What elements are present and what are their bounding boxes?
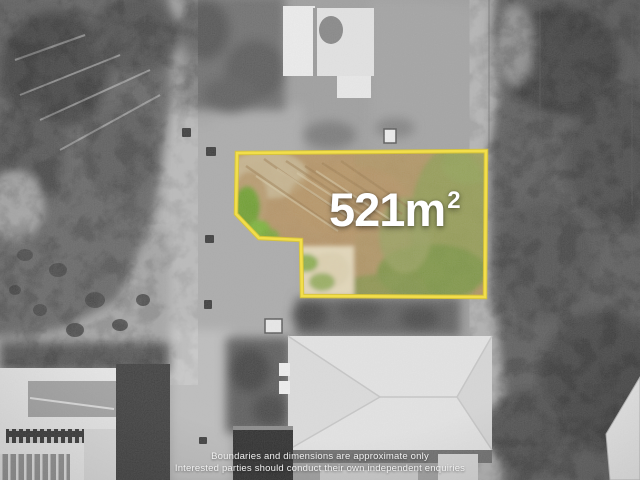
area-superscript: 2 (447, 189, 460, 213)
area-label: 521m2 (329, 186, 461, 233)
disclaimer: Boundaries and dimensions are approximat… (0, 451, 640, 474)
area-value: 521m (329, 183, 445, 236)
vignette (0, 0, 640, 480)
disclaimer-line-2: Interested parties should conduct their … (0, 463, 640, 475)
disclaimer-line-1: Boundaries and dimensions are approximat… (0, 451, 640, 463)
aerial-listing-image: 521m2 Boundaries and dimensions are appr… (0, 0, 640, 480)
aerial-photo (0, 0, 640, 480)
